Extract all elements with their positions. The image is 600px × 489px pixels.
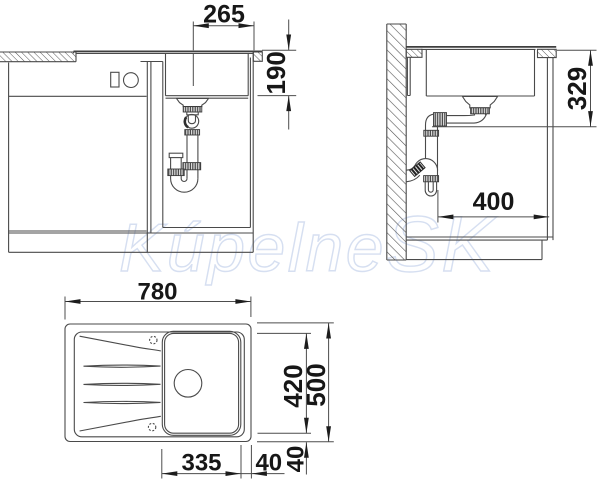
svg-text:500: 500 xyxy=(301,363,331,406)
svg-text:400: 400 xyxy=(473,188,515,216)
svg-text:329: 329 xyxy=(562,67,592,110)
svg-text:190: 190 xyxy=(261,51,291,94)
svg-text:KúpelneSK: KúpelneSK xyxy=(119,199,497,288)
svg-text:335: 335 xyxy=(181,449,221,476)
